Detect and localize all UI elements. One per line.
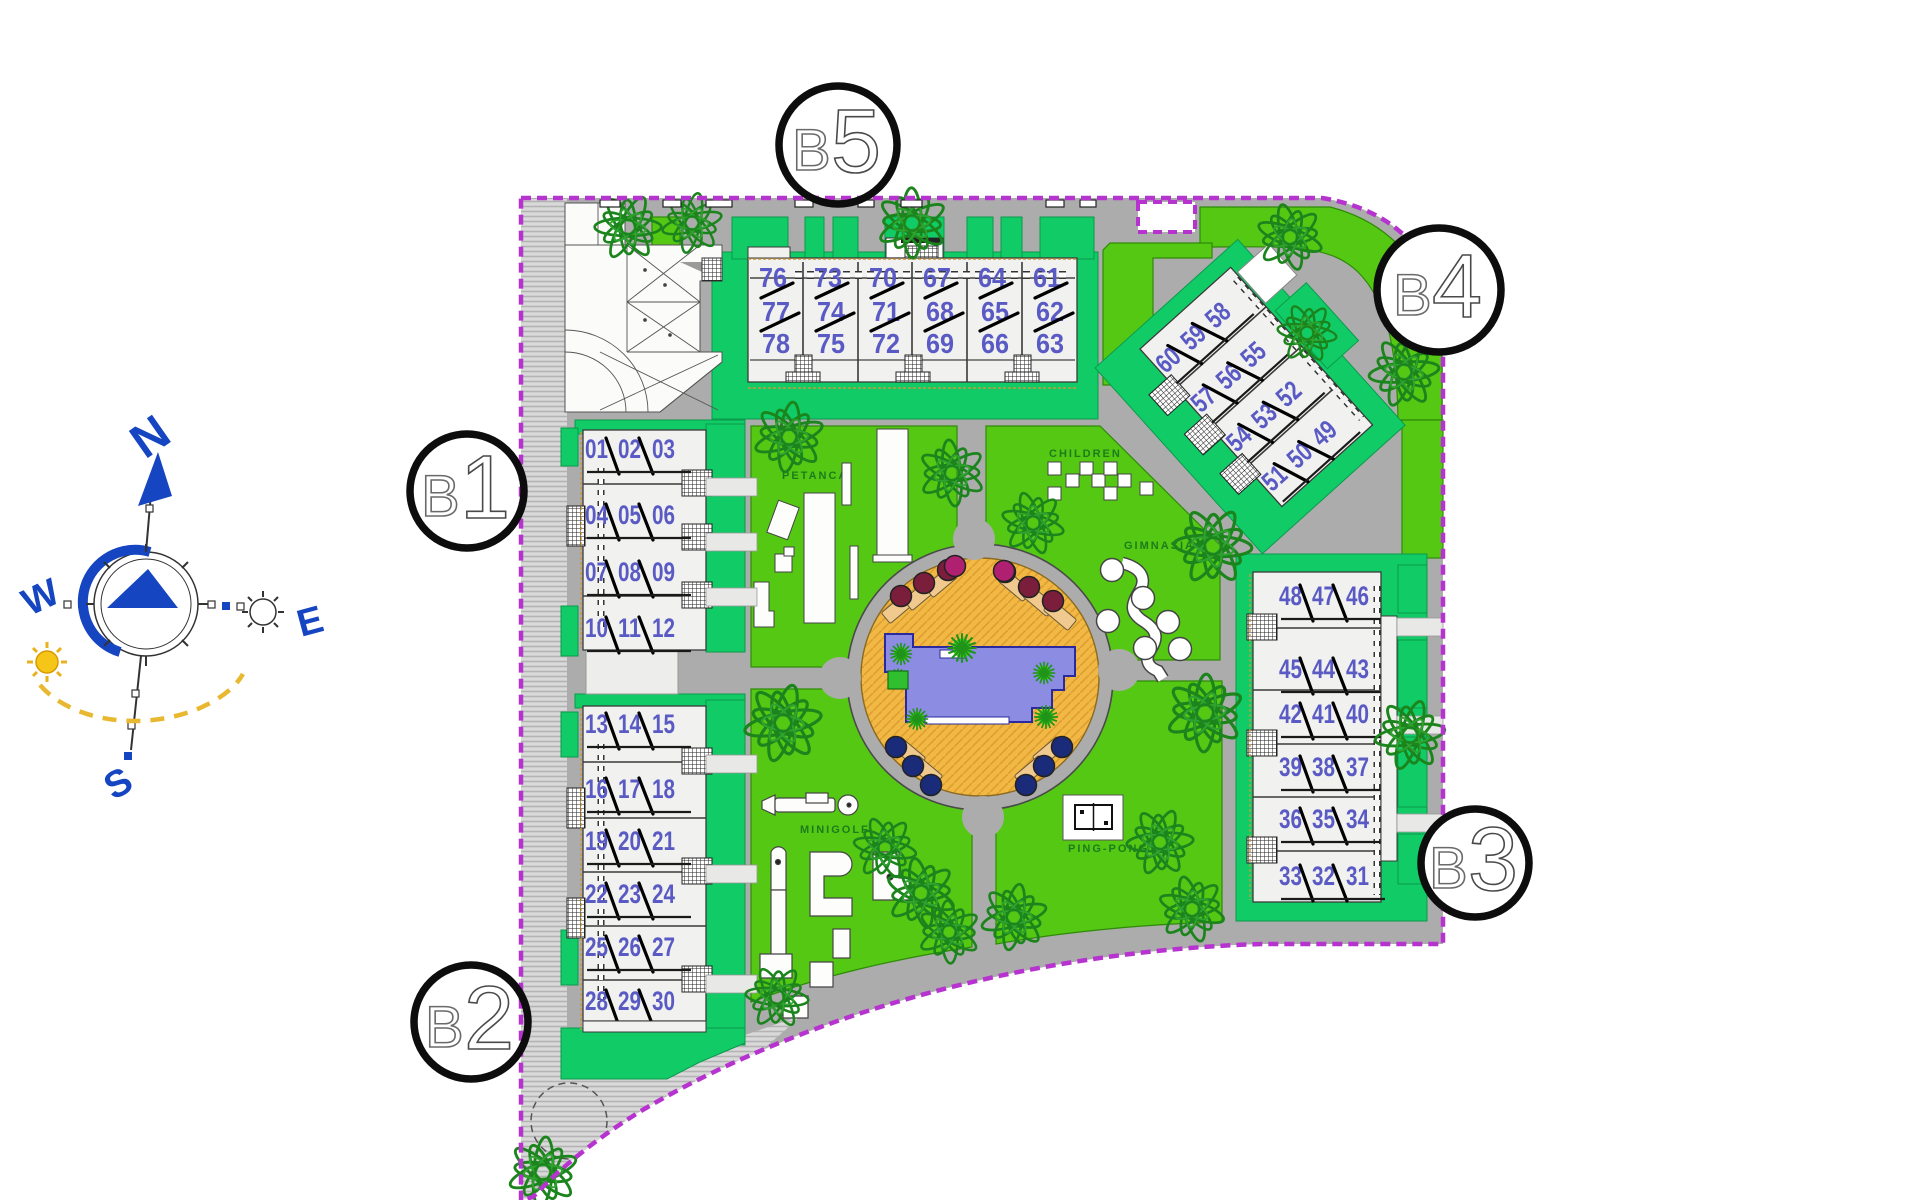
svg-text:63: 63	[1036, 328, 1064, 359]
svg-text:18: 18	[652, 774, 675, 804]
svg-text:B: B	[1393, 263, 1432, 328]
svg-text:MINIGOLF: MINIGOLF	[800, 824, 870, 836]
svg-text:27: 27	[652, 932, 675, 962]
svg-text:PETANCA: PETANCA	[782, 470, 848, 482]
svg-text:69: 69	[926, 328, 954, 359]
svg-text:03: 03	[652, 434, 675, 464]
svg-text:30: 30	[652, 986, 675, 1016]
svg-text:31: 31	[1346, 861, 1369, 891]
svg-text:37: 37	[1346, 752, 1369, 782]
svg-text:3: 3	[1468, 810, 1518, 910]
svg-text:21: 21	[652, 826, 675, 856]
svg-text:43: 43	[1346, 654, 1369, 684]
svg-text:B: B	[1429, 836, 1468, 901]
svg-text:34: 34	[1346, 804, 1369, 834]
svg-text:09: 09	[652, 557, 675, 587]
svg-text:2: 2	[464, 969, 514, 1069]
svg-text:78: 78	[762, 328, 790, 359]
svg-text:24: 24	[652, 879, 675, 909]
svg-text:06: 06	[652, 500, 675, 530]
svg-text:46: 46	[1346, 581, 1369, 611]
svg-text:40: 40	[1346, 699, 1369, 729]
svg-text:1: 1	[460, 438, 510, 538]
svg-text:66: 66	[981, 328, 1009, 359]
svg-text:72: 72	[872, 328, 900, 359]
svg-text:CHILDREN: CHILDREN	[1049, 448, 1122, 460]
svg-text:B: B	[425, 995, 464, 1060]
svg-text:B: B	[792, 118, 831, 183]
svg-text:15: 15	[652, 709, 675, 739]
svg-text:4: 4	[1432, 237, 1482, 337]
svg-text:B: B	[421, 464, 460, 529]
svg-text:12: 12	[652, 613, 675, 643]
svg-text:5: 5	[831, 92, 881, 192]
svg-text:75: 75	[817, 328, 845, 359]
